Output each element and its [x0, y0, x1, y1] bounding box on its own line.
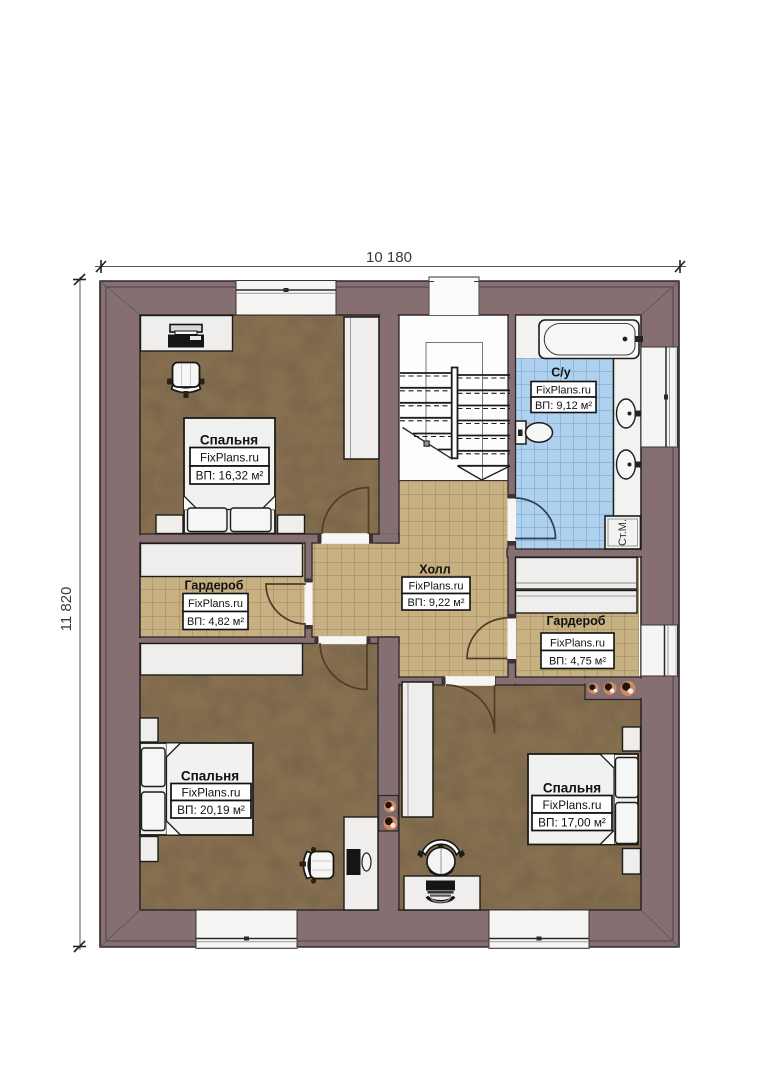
svg-text:FixPlans.ru: FixPlans.ru: [536, 385, 591, 397]
svg-text:ВП: 17,00 м²: ВП: 17,00 м²: [538, 816, 606, 830]
svg-text:ВП: 16,32 м²: ВП: 16,32 м²: [196, 469, 264, 483]
svg-text:ВП: 4,75 м²: ВП: 4,75 м²: [549, 656, 606, 668]
svg-text:ВП: 20,19 м²: ВП: 20,19 м²: [177, 803, 245, 817]
svg-text:Гардероб: Гардероб: [546, 614, 605, 628]
svg-text:FixPlans.ru: FixPlans.ru: [550, 638, 605, 650]
svg-text:ВП: 9,12 м²: ВП: 9,12 м²: [535, 400, 592, 412]
svg-text:Холл: Холл: [419, 563, 450, 577]
svg-text:ВП: 9,22 м²: ВП: 9,22 м²: [407, 597, 464, 609]
svg-text:Спальня: Спальня: [200, 433, 258, 448]
svg-text:FixPlans.ru: FixPlans.ru: [542, 798, 601, 812]
svg-text:11 820: 11 820: [58, 587, 75, 632]
svg-text:Ст.М.: Ст.М.: [617, 519, 629, 546]
svg-text:Спальня: Спальня: [181, 769, 239, 784]
svg-text:ВП: 4,82 м²: ВП: 4,82 м²: [187, 616, 244, 628]
svg-text:С/у: С/у: [551, 366, 571, 380]
svg-text:FixPlans.ru: FixPlans.ru: [188, 598, 243, 610]
svg-text:10 180: 10 180: [366, 249, 412, 266]
svg-text:FixPlans.ru: FixPlans.ru: [181, 786, 240, 800]
svg-text:Спальня: Спальня: [543, 781, 601, 796]
svg-text:FixPlans.ru: FixPlans.ru: [408, 581, 463, 593]
svg-text:FixPlans.ru: FixPlans.ru: [200, 451, 259, 465]
svg-text:Гардероб: Гардероб: [184, 579, 243, 593]
